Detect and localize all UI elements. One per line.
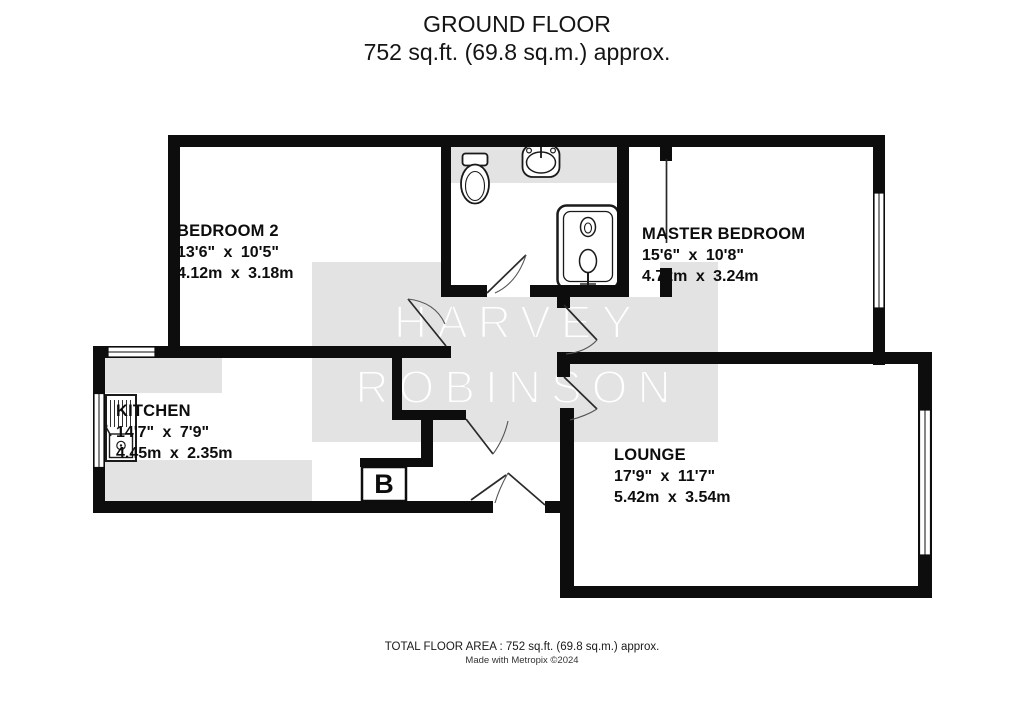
floor-plan-canvas: HARVEY ROBINSON — [0, 0, 1024, 707]
basin-icon — [523, 145, 560, 177]
room-label-bedroom2: BEDROOM 2 13'6" x 10'5" 4.12m x 3.18m — [177, 221, 437, 284]
page-subtitle: 752 sq.ft. (69.8 sq.m.) approx. — [0, 38, 1024, 66]
room-dim-imperial: 15'6" x 10'8" — [642, 245, 902, 266]
room-label-kitchen: KITCHEN 14'7" x 7'9" 4.45m x 2.35m — [116, 401, 376, 464]
room-label-master-bedroom: MASTER BEDROOM 15'6" x 10'8" 4.72m x 3.2… — [642, 224, 902, 287]
page-title: GROUND FLOOR — [0, 10, 1024, 38]
floorplan-page: HARVEY ROBINSON — [0, 0, 1024, 707]
window — [108, 347, 155, 357]
room-dim-imperial: 13'6" x 10'5" — [177, 242, 437, 263]
wall — [660, 147, 672, 161]
room-name: BEDROOM 2 — [177, 221, 437, 242]
wall — [557, 364, 570, 377]
room-label-lounge: LOUNGE 17'9" x 11'7" 5.42m x 3.54m — [614, 445, 874, 508]
wall — [392, 352, 402, 420]
room-name: KITCHEN — [116, 401, 376, 422]
metropix-credit: Made with Metropix ©2024 — [0, 655, 1024, 666]
room-dim-metric: 4.12m x 3.18m — [177, 263, 437, 284]
toilet-icon — [461, 154, 489, 204]
room-dim-metric: 4.45m x 2.35m — [116, 443, 376, 464]
wall — [617, 135, 629, 297]
room-dim-imperial: 14'7" x 7'9" — [116, 422, 376, 443]
wall — [168, 135, 885, 147]
room-dim-metric: 4.72m x 3.24m — [642, 266, 902, 287]
room-name: MASTER BEDROOM — [642, 224, 902, 245]
wall — [557, 297, 570, 308]
window — [920, 410, 931, 555]
watermark-word-2: ROBINSON — [355, 361, 680, 413]
wall — [392, 410, 466, 420]
wall — [530, 285, 629, 297]
plan-footer: TOTAL FLOOR AREA : 752 sq.ft. (69.8 sq.m… — [0, 641, 1024, 666]
watermark-word-1: HARVEY — [394, 296, 642, 348]
window — [94, 394, 104, 468]
wall — [441, 285, 487, 297]
wall — [557, 352, 930, 364]
plan-title-block: GROUND FLOOR 752 sq.ft. (69.8 sq.m.) app… — [0, 10, 1024, 66]
wall — [93, 501, 493, 513]
shower-icon — [558, 206, 619, 289]
room-name: LOUNGE — [614, 445, 874, 466]
wall — [560, 408, 574, 598]
room-dim-imperial: 17'9" x 11'7" — [614, 466, 874, 487]
total-floor-area: TOTAL FLOOR AREA : 752 sq.ft. (69.8 sq.m… — [0, 641, 1024, 653]
wall — [560, 586, 932, 598]
wall — [441, 135, 451, 297]
kitchen-counter-bottom — [105, 460, 312, 503]
room-dim-metric: 5.42m x 3.54m — [614, 487, 874, 508]
wall — [180, 346, 451, 358]
kitchen-counter-top — [105, 352, 222, 393]
boiler-marker: B — [362, 467, 406, 501]
